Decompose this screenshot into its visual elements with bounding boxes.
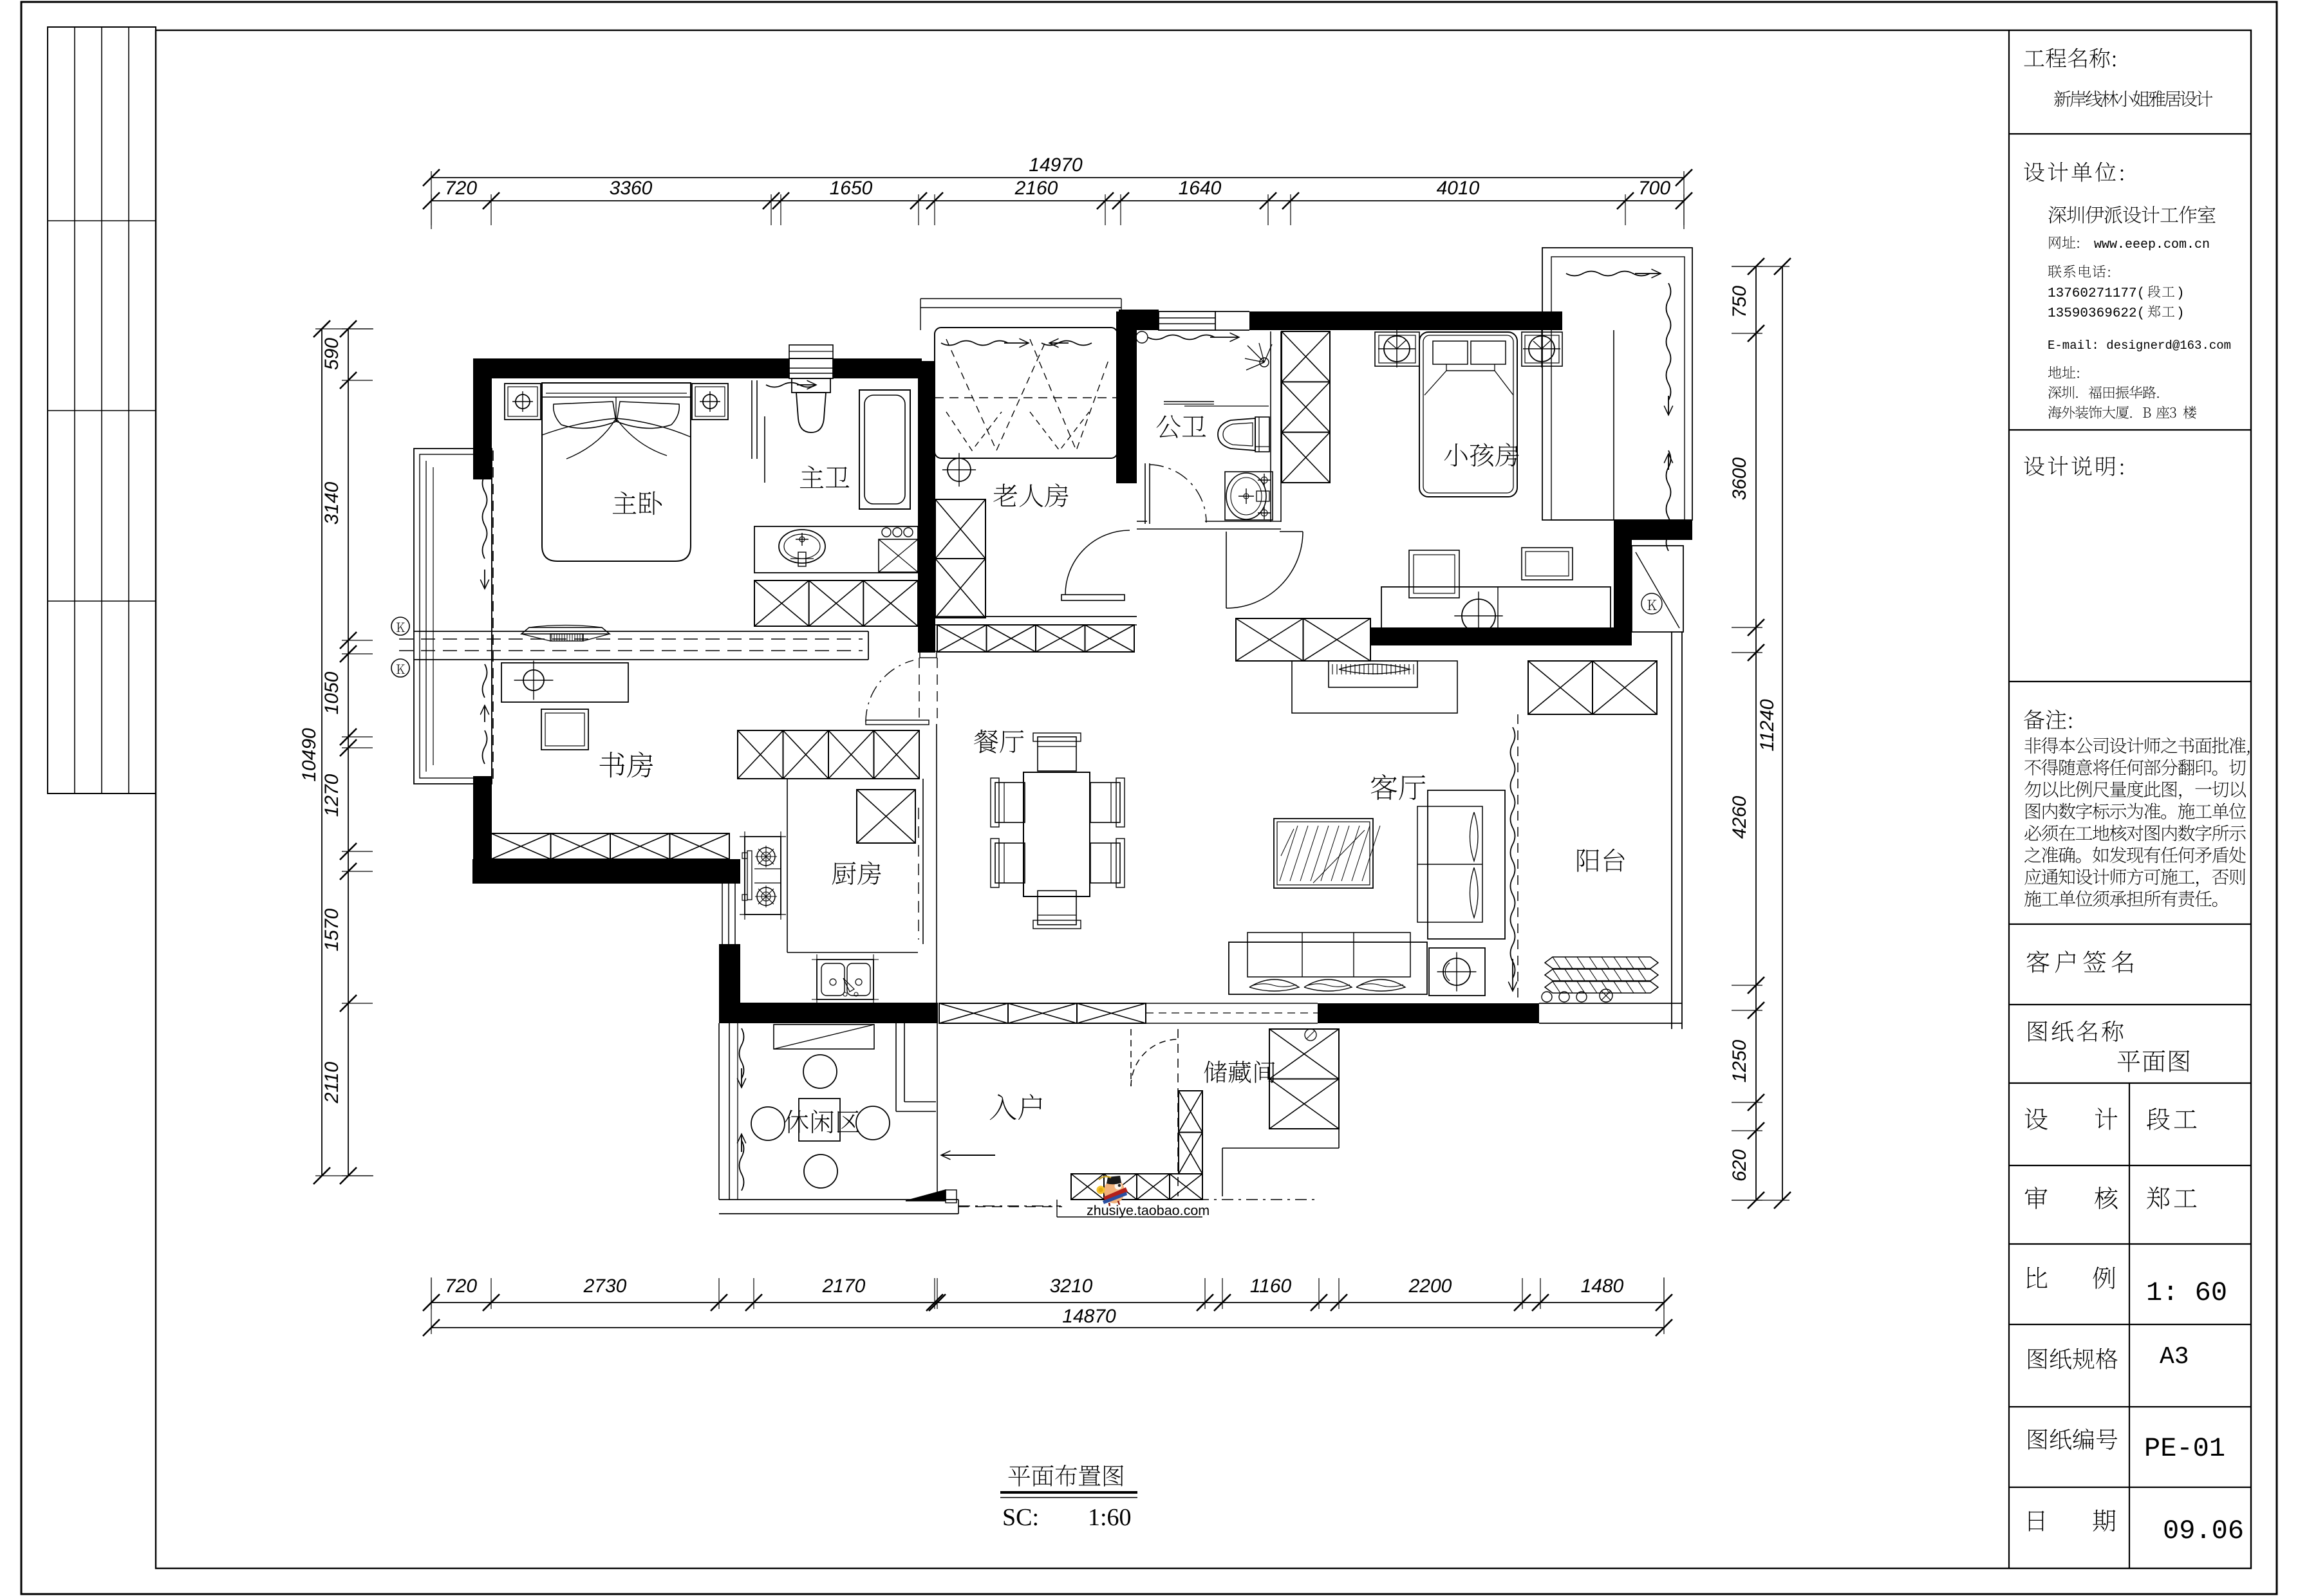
svg-text:1650: 1650 [830,178,873,199]
svg-text:PE-01: PE-01 [2144,1433,2225,1464]
svg-text:10490: 10490 [299,728,320,782]
svg-text:3600: 3600 [1729,457,1750,500]
svg-text:590: 590 [321,338,342,370]
svg-text:1050: 1050 [321,671,342,714]
svg-text:750: 750 [1729,286,1750,318]
svg-text:14870: 14870 [1062,1306,1116,1327]
svg-text:1480: 1480 [1581,1276,1624,1297]
svg-text:): ) [2176,306,2185,321]
svg-text:1570: 1570 [321,908,342,951]
svg-text:11240: 11240 [1757,699,1778,752]
svg-text:A3: A3 [2160,1343,2189,1371]
svg-text:2160: 2160 [1014,178,1058,199]
svg-text:1640: 1640 [1179,178,1222,199]
svg-text:1:60: 1:60 [1088,1504,1132,1531]
svg-text:zhusiye.taobao.com: zhusiye.taobao.com [1087,1203,1210,1218]
svg-text:2170: 2170 [822,1276,866,1297]
svg-text:1270: 1270 [321,774,342,817]
svg-text:3140: 3140 [321,481,342,524]
svg-text:E-mail: designerd@163.com: E-mail: designerd@163.com [2048,339,2231,353]
svg-text:09.06: 09.06 [2163,1516,2244,1546]
svg-text:4010: 4010 [1437,178,1480,199]
svg-text:SC:: SC: [1002,1504,1039,1531]
svg-text:620: 620 [1729,1149,1750,1182]
svg-text:720: 720 [445,178,477,199]
svg-text:3360: 3360 [610,178,653,199]
svg-text:): ) [2176,286,2185,301]
svg-text:2200: 2200 [1408,1276,1452,1297]
svg-text:2730: 2730 [583,1276,627,1297]
svg-text:4260: 4260 [1729,795,1750,839]
svg-text:3210: 3210 [1050,1276,1093,1297]
svg-text:2110: 2110 [321,1061,342,1104]
svg-text:720: 720 [445,1276,477,1297]
svg-text:700: 700 [1638,178,1670,199]
svg-text:13760271177(: 13760271177( [2048,286,2145,301]
svg-text:www.eeep.com.cn: www.eeep.com.cn [2094,237,2210,252]
svg-text:1250: 1250 [1729,1039,1750,1082]
svg-text:14970: 14970 [1029,154,1083,176]
svg-text:1: 60: 1: 60 [2146,1277,2227,1308]
svg-text:1160: 1160 [1250,1276,1292,1297]
svg-text:13590369622(: 13590369622( [2048,306,2145,321]
